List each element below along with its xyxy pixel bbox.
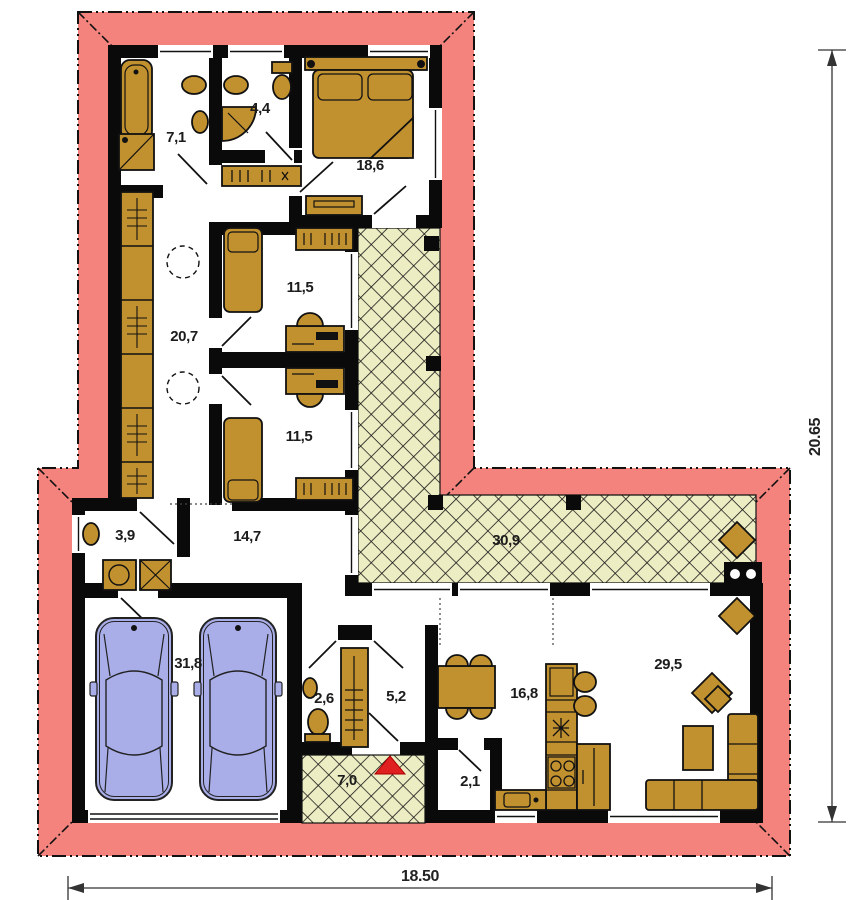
bathtub: [121, 60, 152, 140]
room-label-wc: 4,4: [250, 100, 271, 117]
room-label-bedroom-one: 11,5: [287, 279, 314, 296]
room-label-hallway: 5,2: [386, 688, 406, 705]
car-right: [194, 618, 282, 800]
floor-plan: 7,1 4,4 18,6 11,5 20,7 11,5 3,9 14,7 30,…: [0, 0, 854, 900]
floor-plan-page: 7,1 4,4 18,6 11,5 20,7 11,5 3,9 14,7 30,…: [0, 0, 854, 900]
shelf-unit: [222, 166, 301, 186]
room-label-bathroom: 7,1: [166, 129, 186, 146]
room-label-hall: 14,7: [233, 528, 261, 545]
toilet: [272, 62, 292, 99]
room-label-bedroom-two: 11,5: [286, 428, 313, 445]
car-left: [90, 618, 178, 800]
sink-wc: [224, 76, 248, 94]
hall-wardrobe: [341, 648, 368, 747]
room-label-corridor: 20,7: [170, 328, 198, 345]
dimension-width-label: 18.50: [401, 868, 440, 885]
coffee-table: [683, 726, 713, 770]
room-label-living-room: 29,5: [654, 656, 682, 673]
room-label-vestibule: 3,9: [115, 527, 135, 544]
room-label-pantry: 2,1: [460, 773, 480, 790]
room-label-garage: 31,8: [174, 655, 202, 672]
terrace-main: [358, 228, 756, 583]
dining-table: [438, 655, 495, 719]
fireplace: [724, 562, 762, 596]
room-label-terrace: 30,9: [492, 532, 520, 549]
room-label-porch: 7,0: [337, 772, 357, 789]
dimension-height-label: 20.65: [807, 417, 824, 456]
double-bed: [305, 57, 427, 158]
room-label-kitchen: 16,8: [510, 685, 538, 702]
shower: [119, 134, 154, 170]
terrace-areas: [358, 228, 756, 583]
room-label-wc-small: 2,6: [314, 690, 334, 707]
porch-area: [302, 755, 425, 823]
dresser: [306, 196, 362, 215]
corridor-wardrobe: [121, 192, 153, 498]
room-label-bedroom-main: 18,6: [356, 157, 384, 174]
